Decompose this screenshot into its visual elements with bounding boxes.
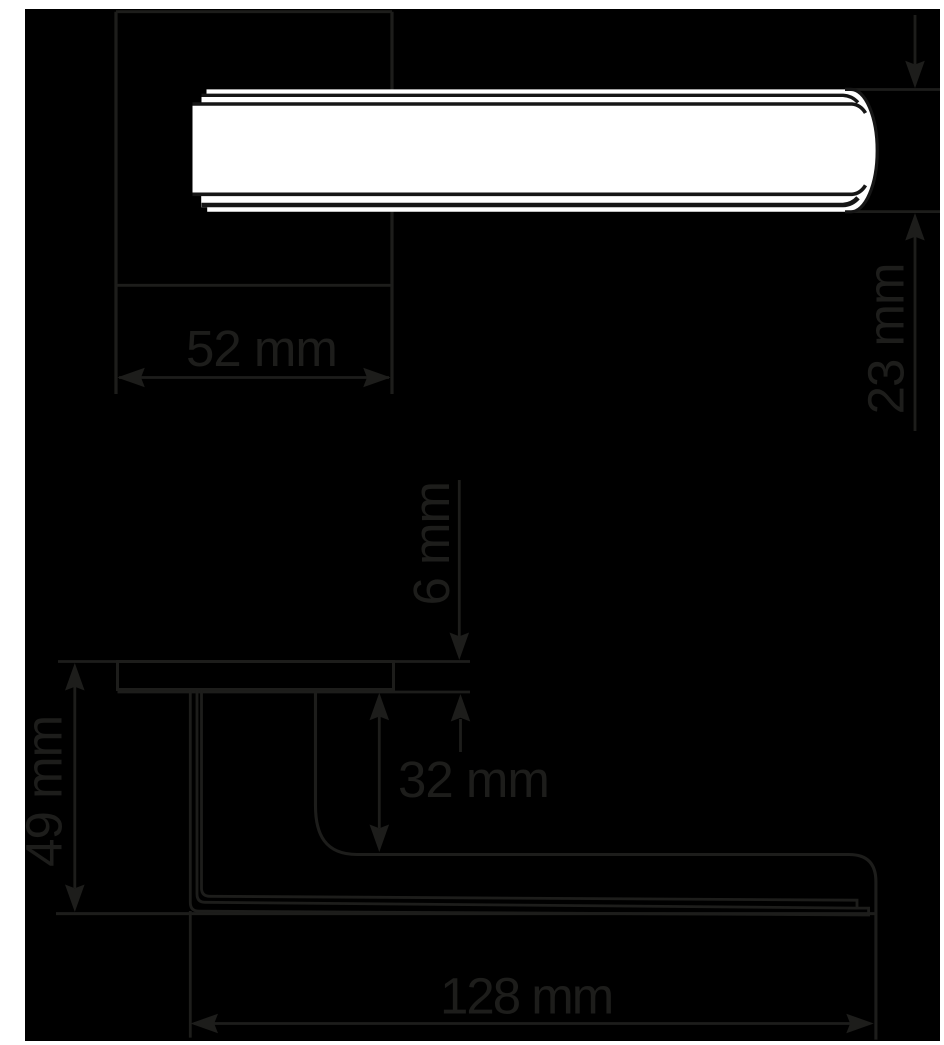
svg-text:32 mm: 32 mm [398,751,549,808]
svg-text:6 mm: 6 mm [403,482,460,606]
svg-text:49 mm: 49 mm [16,716,73,867]
svg-text:52 mm: 52 mm [186,320,337,377]
svg-text:128 mm: 128 mm [440,968,612,1025]
svg-text:23 mm: 23 mm [858,264,915,415]
